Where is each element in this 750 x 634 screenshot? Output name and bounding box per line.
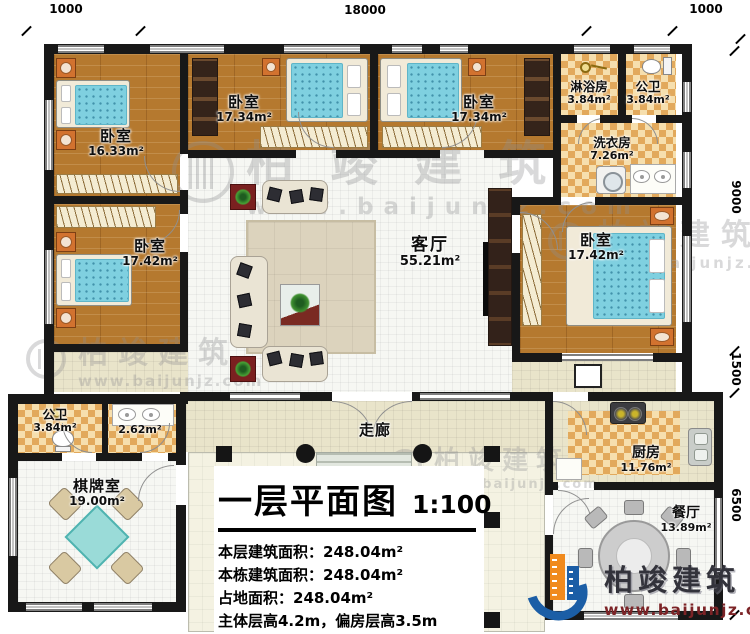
room-label: 走廊: [330, 422, 420, 439]
pier-column: [216, 446, 232, 462]
flue-box: [574, 364, 602, 388]
wall: [594, 482, 714, 490]
room-label: 淋浴房3.84m²: [560, 80, 618, 106]
mattress: [75, 85, 127, 125]
sofa-pillow: [309, 351, 324, 366]
chair: [624, 500, 644, 515]
dimension-label: 9000: [729, 177, 743, 217]
room-label: 公卫3.84m²: [620, 80, 676, 106]
window: [683, 236, 691, 322]
window: [634, 45, 670, 53]
nightstand: [56, 308, 76, 328]
window: [45, 100, 53, 170]
toilet: [642, 59, 661, 74]
wall: [588, 392, 723, 401]
round-column: [413, 444, 432, 463]
wall: [96, 453, 142, 461]
dimension-tick: [581, 26, 592, 37]
pier-column: [484, 446, 500, 462]
pillow: [61, 85, 71, 102]
dimension-tick: [21, 26, 32, 37]
kitchen-appliance: [556, 458, 582, 480]
double-bed: [56, 80, 130, 128]
mattress: [291, 63, 343, 118]
logo-url: www.baijunjz.com: [604, 601, 750, 619]
dimension-label: 1000: [40, 2, 92, 16]
washbasin: [654, 170, 671, 183]
wall: [18, 453, 62, 461]
room-label: 洗衣房7.26m²: [578, 136, 646, 162]
plant-stand: [230, 184, 256, 210]
wardrobe: [56, 206, 156, 228]
stat-line: 本层建筑面积：248.04m²: [218, 541, 492, 564]
room-label: 卧室17.42m²: [544, 232, 648, 262]
nightstand: [56, 58, 76, 78]
sofa-pillow: [289, 189, 304, 204]
nightstand: [650, 328, 674, 346]
washbasin: [633, 170, 650, 183]
wall: [512, 197, 561, 205]
wall: [561, 115, 577, 123]
dimension-label: 6500: [729, 485, 743, 525]
wall: [176, 394, 186, 465]
wall: [176, 505, 186, 612]
logo-name: 柏竣建筑: [604, 557, 750, 599]
wall: [336, 150, 370, 158]
wall: [484, 150, 553, 158]
wall: [600, 115, 632, 123]
dimension-label: 1000: [680, 2, 732, 16]
room-label: 2.62m²: [108, 424, 172, 436]
wall: [168, 453, 176, 461]
window: [420, 393, 510, 400]
shower-head-icon: [580, 62, 591, 73]
wall: [180, 204, 188, 214]
dimension-tick: [135, 26, 146, 37]
toilet-tank: [663, 57, 672, 75]
window: [9, 478, 17, 556]
plant-stand: [230, 356, 256, 382]
drawing-scale: 1:100: [412, 490, 492, 519]
window: [683, 82, 691, 112]
room-label: 卧室17.34m²: [424, 94, 534, 124]
washbasin: [142, 408, 160, 421]
window: [150, 45, 224, 53]
dimension-tick: [729, 46, 740, 57]
sofa-pillow: [237, 293, 252, 308]
wall: [188, 150, 296, 158]
wall: [553, 482, 558, 490]
nightstand: [262, 58, 280, 76]
room-label: 卧室17.42m²: [98, 238, 202, 268]
pillow: [61, 107, 71, 124]
coffee-table: [280, 284, 320, 326]
window: [45, 250, 53, 324]
room-label: 公卫3.84m²: [24, 408, 86, 434]
hall-pocket-left: [54, 352, 188, 392]
window: [26, 603, 82, 611]
pillow: [387, 65, 401, 88]
title-block: 一层平面图 1:100 本层建筑面积：248.04m² 本栋建筑面积：248.0…: [218, 474, 492, 633]
window: [58, 45, 104, 53]
wall: [553, 44, 561, 205]
title-underline: [218, 528, 476, 532]
washbasin: [118, 408, 136, 421]
pillow: [347, 93, 361, 116]
wall: [653, 353, 682, 362]
dimension-tick: [667, 26, 678, 37]
sofa-pillow: [289, 353, 304, 368]
room-label: 客厅55.21m²: [374, 236, 486, 270]
sliding-door: [562, 354, 653, 361]
window: [94, 603, 152, 611]
window: [392, 45, 422, 53]
wall: [370, 44, 378, 158]
toilet-tank: [55, 446, 71, 452]
floor-plan: 柏竣建筑 www.baijunjz.com 柏竣建筑 www.baijunjz.…: [0, 0, 750, 634]
nightstand: [468, 58, 486, 76]
pillow: [387, 93, 401, 116]
room-label: 卧室16.33m²: [66, 128, 166, 158]
room-label: 厨房11.76m²: [600, 446, 692, 474]
logo-building-icon: [526, 550, 598, 626]
window: [683, 152, 691, 188]
room-label: 棋牌室19.00m²: [42, 478, 152, 508]
stat-line: 占地面积：248.04m²: [218, 587, 492, 610]
nightstand: [650, 207, 674, 225]
room-label: 卧室17.34m²: [192, 94, 296, 124]
round-column: [296, 444, 315, 463]
stat-line: 主体层高4.2m，偏房层高3.5m: [218, 610, 492, 633]
wall: [595, 197, 682, 205]
wall: [44, 196, 188, 204]
pillow: [347, 65, 361, 88]
wall: [512, 353, 562, 362]
pillow: [649, 239, 665, 273]
window: [574, 45, 610, 53]
wall: [44, 344, 188, 352]
stat-line: 本栋建筑面积：248.04m²: [218, 564, 492, 587]
nightstand: [56, 232, 76, 252]
window: [230, 393, 300, 400]
wall: [512, 253, 520, 353]
wall: [44, 394, 188, 404]
sofa-pillow: [237, 323, 252, 338]
stove: [610, 402, 646, 424]
room-label: 餐厅13.89m²: [646, 506, 726, 534]
dimension-label: 18000: [334, 3, 396, 17]
pillow: [61, 259, 71, 278]
wall: [656, 115, 682, 123]
wall: [512, 205, 520, 215]
company-logo: 柏竣建筑 www.baijunjz.com: [526, 550, 750, 626]
sofa-pillow: [309, 187, 324, 202]
dimension-tick: [729, 388, 740, 399]
wall: [378, 150, 440, 158]
pillow: [649, 279, 665, 313]
tv-cabinet: [488, 188, 512, 346]
wall: [545, 401, 553, 495]
dimension-tick: [735, 34, 746, 45]
window: [440, 45, 468, 53]
pillow: [61, 282, 71, 301]
washing-machine: [596, 166, 626, 194]
window: [284, 45, 360, 53]
page-title: 一层平面图: [218, 474, 398, 523]
wall: [180, 54, 188, 154]
